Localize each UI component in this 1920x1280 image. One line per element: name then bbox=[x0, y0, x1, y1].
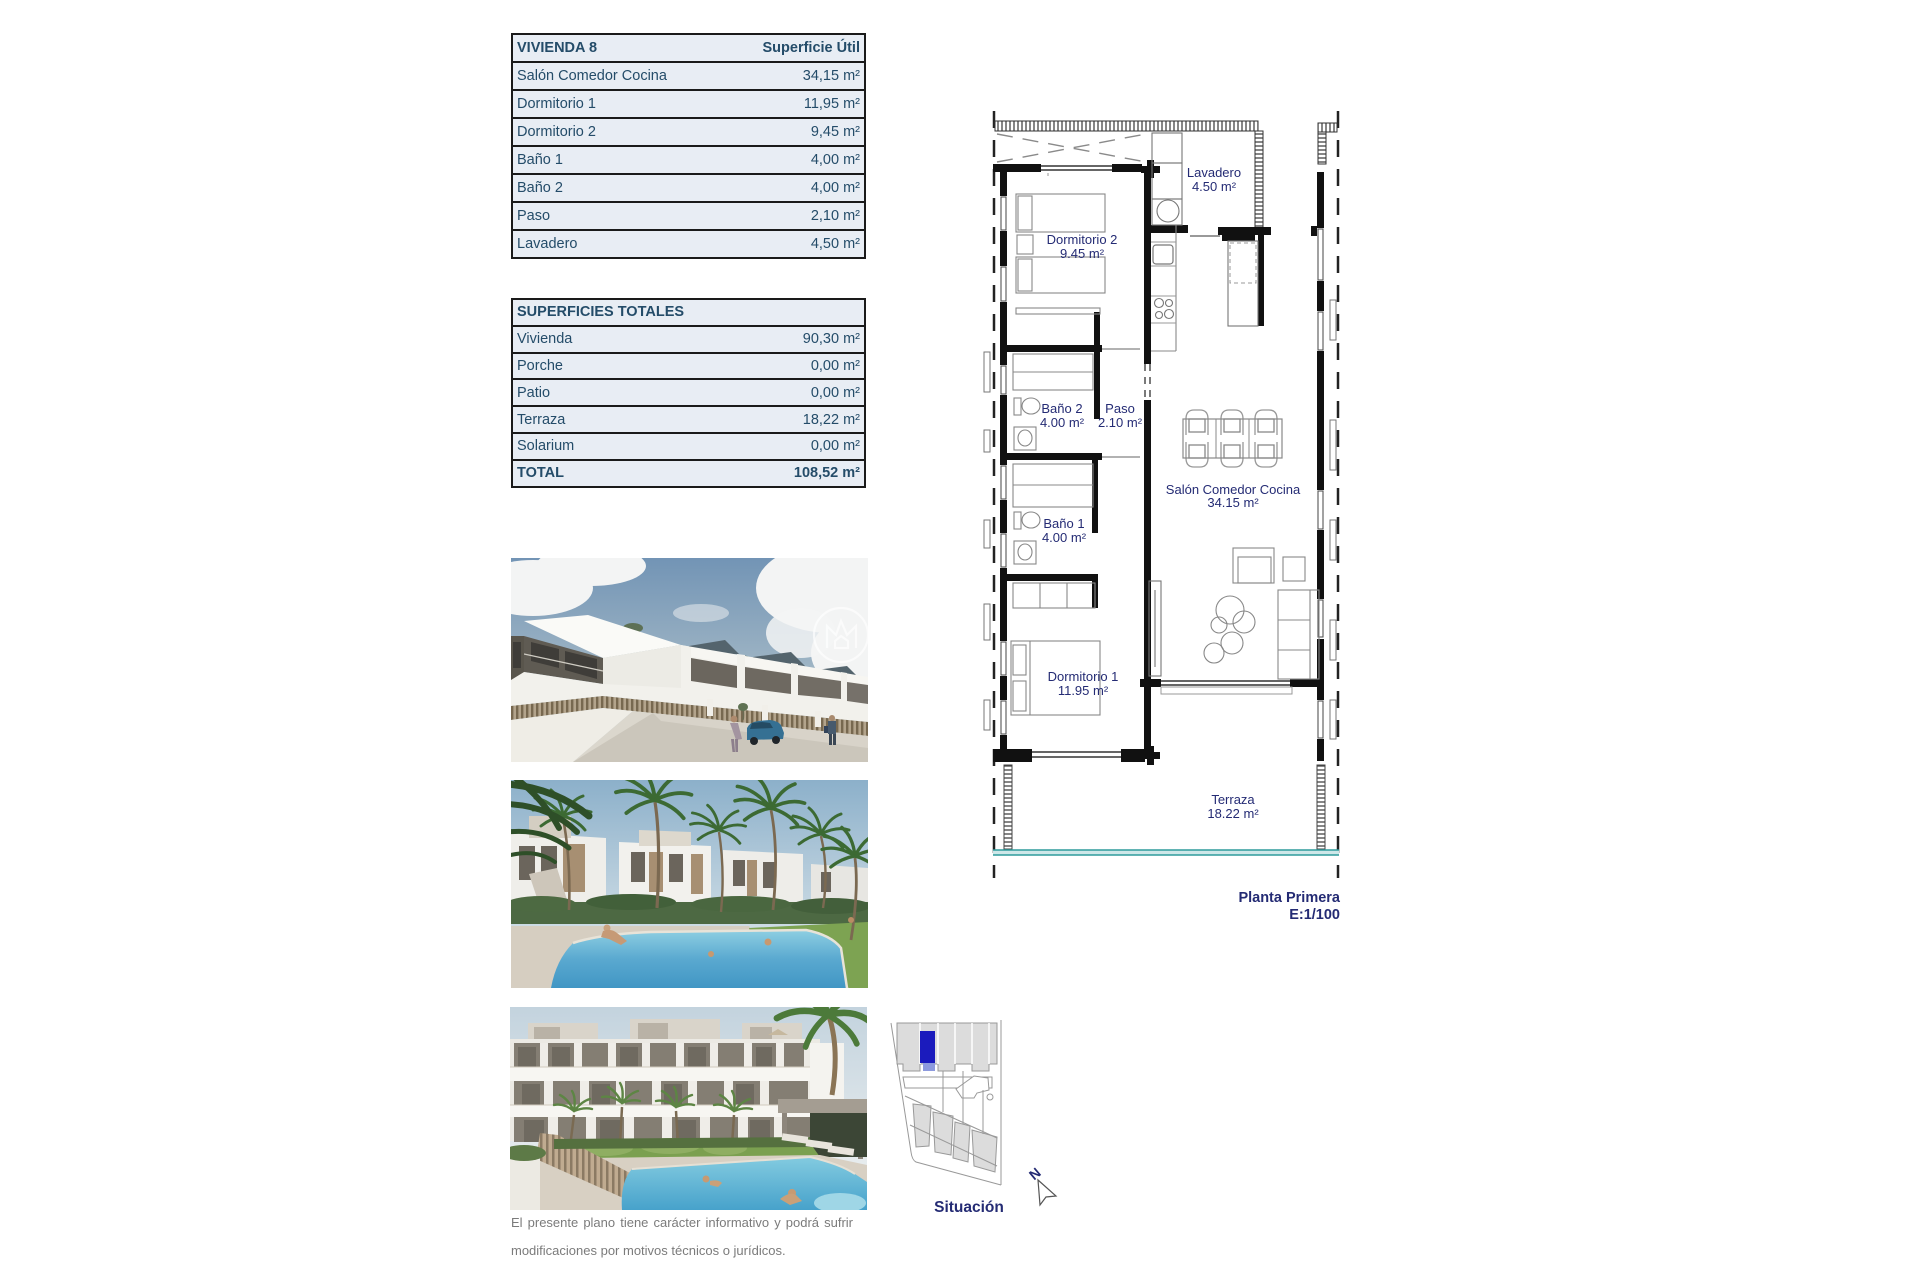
svg-text:18.22 m²: 18.22 m² bbox=[1207, 806, 1259, 821]
svg-text:11.95 m²: 11.95 m² bbox=[1058, 683, 1109, 698]
svg-text:4.00 m²: 4.00 m² bbox=[1040, 415, 1085, 430]
svg-text:Paso: Paso bbox=[1105, 401, 1135, 416]
svg-text:N: N bbox=[1026, 1164, 1044, 1183]
svg-text:E:1/100: E:1/100 bbox=[1289, 907, 1340, 923]
svg-text:Dormitorio 1: Dormitorio 1 bbox=[1048, 669, 1119, 684]
svg-text:Baño 2: Baño 2 bbox=[1041, 401, 1082, 416]
svg-text:Planta Primera: Planta Primera bbox=[1238, 890, 1340, 906]
svg-text:34.15 m²: 34.15 m² bbox=[1207, 495, 1259, 510]
svg-text:Baño 1: Baño 1 bbox=[1043, 516, 1084, 531]
svg-text:Dormitorio 2: Dormitorio 2 bbox=[1047, 232, 1118, 247]
svg-text:9.45 m²: 9.45 m² bbox=[1060, 246, 1105, 261]
svg-text:Terraza: Terraza bbox=[1211, 792, 1255, 807]
svg-text:4.50 m²: 4.50 m² bbox=[1192, 179, 1237, 194]
svg-text:Lavadero: Lavadero bbox=[1187, 165, 1241, 180]
svg-text:4.00 m²: 4.00 m² bbox=[1042, 530, 1087, 545]
svg-text:Situación: Situación bbox=[934, 1199, 1004, 1216]
svg-text:2.10 m²: 2.10 m² bbox=[1098, 415, 1143, 430]
